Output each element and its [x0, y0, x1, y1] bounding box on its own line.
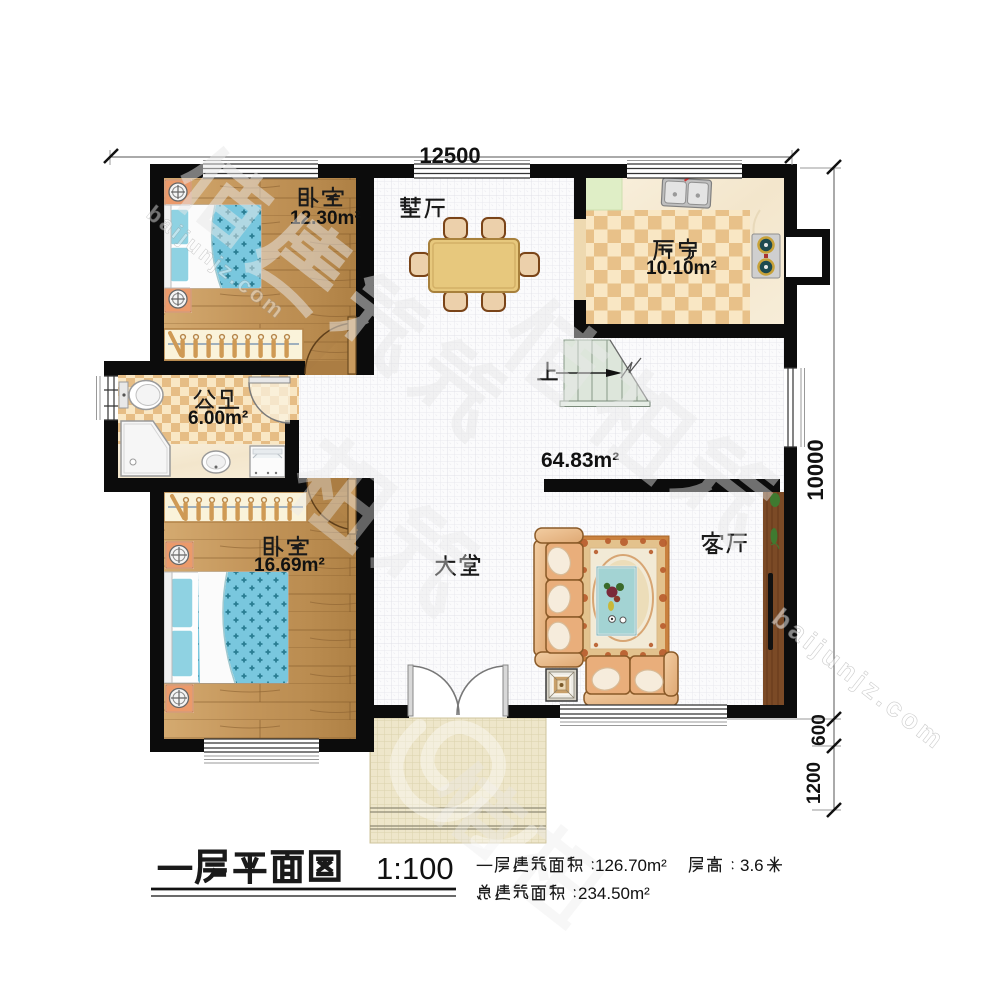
svg-text:3.6: 3.6	[740, 856, 764, 875]
svg-text:1200: 1200	[804, 762, 825, 804]
svg-text:6.00m²: 6.00m²	[188, 408, 248, 429]
svg-text:16.69m²: 16.69m²	[254, 555, 325, 576]
svg-text:10.10m²: 10.10m²	[646, 258, 717, 279]
svg-text:1:100: 1:100	[376, 851, 454, 886]
svg-text:234.50m²: 234.50m²	[578, 884, 650, 903]
svg-text:12500: 12500	[419, 143, 480, 168]
svg-text:126.70m²: 126.70m²	[595, 856, 667, 875]
svg-text:10000: 10000	[803, 439, 828, 500]
svg-text:600: 600	[809, 714, 830, 746]
